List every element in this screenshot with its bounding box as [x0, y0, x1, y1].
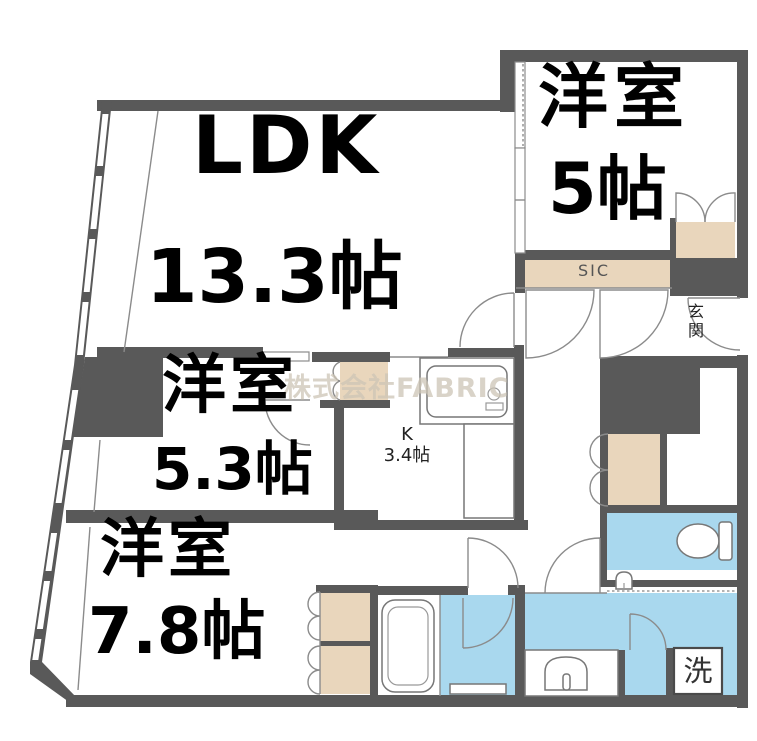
- pillar-left-block: [73, 357, 163, 437]
- wall-laundry-stub: [666, 648, 674, 696]
- wall-kitchen-right: [514, 345, 524, 530]
- bedroom5-closet: [676, 222, 735, 258]
- bathtub-icon: [382, 600, 434, 692]
- wall-entry-block: [670, 258, 748, 296]
- wall-hallcloset-left: [600, 434, 608, 513]
- wall-bath-right: [515, 585, 525, 696]
- kitchen-counter-side: [464, 424, 514, 518]
- toilet-icon: [677, 524, 719, 558]
- bath-area-door[interactable]: [468, 538, 518, 588]
- ldk-hall-door[interactable]: [460, 293, 514, 347]
- floorplan: 株式会社FABRIC LDK 13.3帖 洋室 5帖 洋室 5.3帖 洋室 7.…: [0, 0, 757, 741]
- wall-hallcloset-right: [660, 434, 667, 513]
- room-size-bedroom5: 5帖: [548, 154, 667, 224]
- bedroom78-closet-upper: [320, 592, 370, 641]
- closet78-bifold-upper[interactable]: [308, 592, 320, 640]
- area-label-sic: SIC: [516, 263, 672, 279]
- wall-bottom: [66, 695, 748, 707]
- wall-bath-left: [370, 585, 378, 696]
- wall-bath-top: [378, 586, 468, 595]
- wall-above-sic: [515, 250, 672, 260]
- closet78-bifold-lower[interactable]: [308, 646, 320, 694]
- wall-closet78-divider: [320, 641, 370, 646]
- wall-bottom-left-corner: [30, 662, 76, 707]
- shower-step: [450, 684, 506, 694]
- pillar-shaft: [600, 364, 700, 434]
- wall-closet78-top: [316, 585, 378, 593]
- room-label-bedroom53: 洋室: [162, 354, 298, 418]
- room-label-bedroom5: 洋室: [538, 62, 690, 132]
- bedroom5-closet-door-left[interactable]: [676, 193, 705, 222]
- wall-toilet-left: [600, 505, 607, 587]
- room-size-bedroom78: 7.8帖: [88, 600, 265, 664]
- bedroom78-closet-lower: [320, 646, 370, 694]
- wall-toilet-top: [600, 505, 737, 513]
- hall-closet: [608, 434, 660, 507]
- wall-kitchen-closet-top: [312, 352, 390, 362]
- room-size-bedroom53: 5.3帖: [152, 440, 313, 498]
- room-label-kitchen: K 3.4帖: [372, 424, 442, 466]
- room-label-bedroom78: 洋室: [100, 518, 236, 582]
- bedroom53-left-edge: [94, 440, 100, 512]
- area-label-entrance: 玄関: [686, 303, 702, 341]
- room-size-ldk: 13.3帖: [146, 240, 403, 314]
- sic-door-left[interactable]: [526, 290, 594, 358]
- sic-door-right[interactable]: [600, 290, 668, 358]
- corridor-washroom-door[interactable]: [545, 538, 600, 593]
- watermark: 株式会社FABRIC: [284, 366, 509, 405]
- bedroom5-closet-door-right[interactable]: [705, 193, 735, 222]
- room-label-ldk: LDK: [192, 106, 380, 186]
- area-label-laundry: 洗: [674, 648, 722, 694]
- wall-right-lower: [737, 355, 748, 708]
- wall-kitchen-top: [448, 348, 514, 357]
